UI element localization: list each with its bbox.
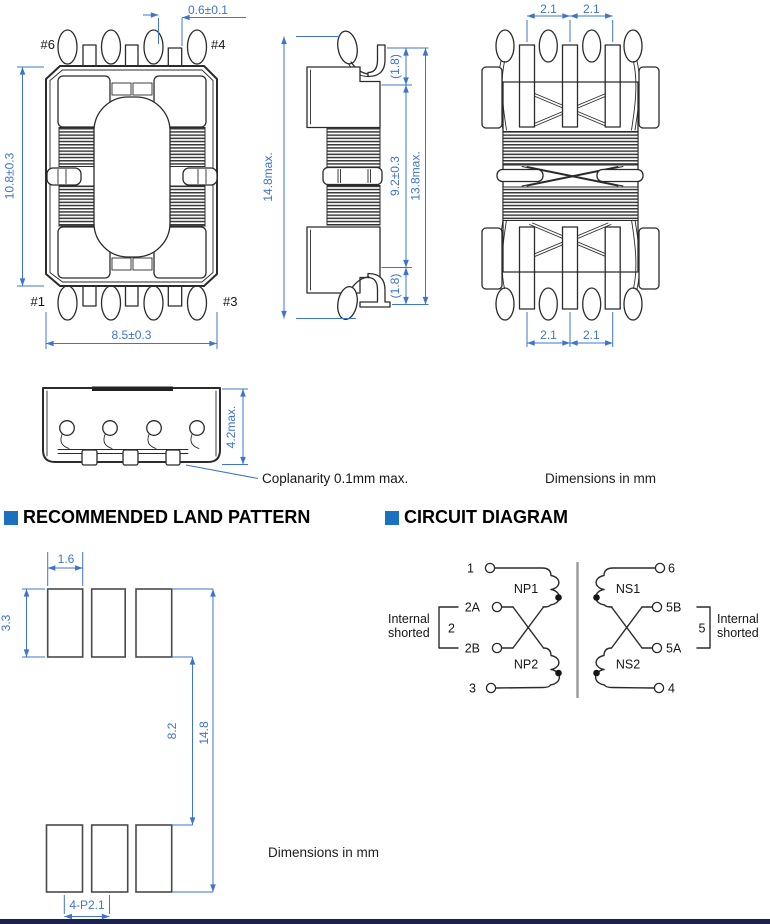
dim-front-height: 10.8±0.3 xyxy=(3,152,17,199)
terminal-5b xyxy=(652,602,661,611)
winding-label-np2: NP2 xyxy=(514,658,538,672)
front-pins-top xyxy=(58,30,207,67)
front-center-core xyxy=(94,97,170,257)
rear-dims-bottom: 2.1 2.1 xyxy=(527,312,613,347)
front-dimensioned-terminal xyxy=(168,48,181,67)
dim-pitch: 4-P2.1 xyxy=(69,898,105,912)
section-header-circuit: CIRCUIT DIAGRAM xyxy=(385,507,568,528)
side-center-tab xyxy=(323,168,382,185)
front-winding-right-lower xyxy=(170,186,205,226)
terminal-3 xyxy=(486,683,495,692)
rear-dims-top: 2.1 2.1 xyxy=(527,2,613,42)
internal-shorted-left-line1: Internal xyxy=(388,612,430,626)
rear-side-tab-right xyxy=(597,170,643,182)
dim-side-height-with-leads: 13.8max. xyxy=(409,151,423,200)
dot-ns1 xyxy=(593,594,600,601)
coplanarity-note: Coplanarity 0.1mm max. xyxy=(262,471,408,486)
rear-view-drawing: 2.1 2.1 2.1 2.1 xyxy=(470,0,670,360)
terminal-label-4: 4 xyxy=(668,682,675,696)
land-dim-pad-height: 3.3 xyxy=(0,589,45,657)
land-dim-pad-width: 1.6 xyxy=(48,552,83,586)
terminal-2a xyxy=(492,602,501,611)
dim-pad-width: 1.6 xyxy=(58,552,75,566)
dot-np2 xyxy=(555,670,562,677)
profile-body xyxy=(43,387,220,466)
dimensions-note-top: Dimensions in mm xyxy=(545,471,656,486)
internal-shorted-right-line2: shorted xyxy=(717,626,759,640)
front-side-tab-left xyxy=(47,168,81,185)
dim-pad-height: 3.3 xyxy=(0,614,13,631)
terminal-label-2a: 2A xyxy=(465,601,481,615)
profile-core-band xyxy=(92,387,173,392)
pin-label-3: #3 xyxy=(223,294,237,309)
internal-shorted-right-line1: Internal xyxy=(717,612,759,626)
rear-body xyxy=(482,30,659,320)
winding-label-ns2: NS2 xyxy=(616,658,640,672)
front-side-tab-right xyxy=(183,168,217,185)
front-dim-height: 10.8±0.3 xyxy=(3,67,45,286)
circuit-diagram-title: CIRCUIT DIAGRAM xyxy=(404,507,568,528)
coplanarity-leader-line xyxy=(186,465,258,479)
internal-shorted-left-line2: shorted xyxy=(388,626,430,640)
side-flange-bottom xyxy=(307,227,380,293)
front-pins-bottom xyxy=(58,286,207,320)
primary-crossover xyxy=(513,607,544,648)
terminal-6 xyxy=(655,563,664,572)
secondary-crossover xyxy=(612,607,643,648)
land-pattern-drawing: 1.6 3.3 8.2 14.8 4-P2.1 xyxy=(0,540,240,924)
footer-bar xyxy=(0,919,770,924)
dot-ns2 xyxy=(593,670,600,677)
front-winding-left-upper xyxy=(59,128,94,167)
profile-view-drawing: 4.2max. Coplanarity 0.1mm max. xyxy=(0,370,470,495)
terminal-label-2b: 2B xyxy=(465,642,480,656)
group-label-2: 2 xyxy=(448,622,455,636)
dim-row-gap: 8.2 xyxy=(165,722,179,739)
dim-profile-height: 4.2max. xyxy=(224,406,238,449)
dim-side-overall-height: 14.8max. xyxy=(261,152,275,201)
pin-label-4: #4 xyxy=(211,37,225,52)
terminal-label-5a: 5A xyxy=(666,642,682,656)
dimensions-note-bottom: Dimensions in mm xyxy=(268,845,379,860)
land-dim-pitch: 4-P2.1 xyxy=(64,895,109,917)
terminal-4 xyxy=(654,683,663,692)
land-pads xyxy=(47,589,172,892)
side-view-drawing: 14.8max. (1.8) 9.2±0.3 (1.8) 13.8max. xyxy=(260,0,440,330)
front-view-drawing: 0.6±0.1 #6 #4 #1 #3 10.8±0.3 8.5±0.3 xyxy=(0,0,260,360)
terminal-1 xyxy=(485,563,494,572)
dim-rear-pitch-top-right: 2.1 xyxy=(583,2,600,16)
side-lead-top xyxy=(368,45,385,77)
pin-label-1: #1 xyxy=(31,294,45,309)
side-winding-upper xyxy=(327,128,380,168)
land-dim-row-gap: 8.2 xyxy=(165,657,193,825)
front-winding-left-lower xyxy=(59,186,94,226)
dim-side-lead-bottom: (1.8) xyxy=(388,274,402,299)
land-pattern-title: RECOMMENDED LAND PATTERN xyxy=(23,507,310,528)
section-square-icon xyxy=(4,511,18,525)
side-pin-top xyxy=(335,30,359,66)
side-winding-lower xyxy=(327,186,380,226)
dot-np1 xyxy=(555,594,562,601)
datasheet-page: 0.6±0.1 #6 #4 #1 #3 10.8±0.3 8.5±0.3 xyxy=(0,0,770,924)
terminal-label-1: 1 xyxy=(467,562,474,576)
rear-winding-lower xyxy=(503,187,638,221)
dim-rear-pitch-top-left: 2.1 xyxy=(540,2,557,16)
terminal-2b xyxy=(492,643,501,652)
terminal-label-5b: 5B xyxy=(666,601,681,615)
winding-label-ns1: NS1 xyxy=(616,582,640,596)
circuit-diagram-drawing: 1 2A 2B 3 6 5B 5A 4 NP1 NP2 NS1 NS2 2 5 … xyxy=(380,545,770,705)
terminal-5a xyxy=(652,643,661,652)
terminal-label-6: 6 xyxy=(668,562,675,576)
side-dims-right: (1.8) 9.2±0.3 (1.8) 13.8max. xyxy=(382,48,429,305)
dim-side-body-height: 9.2±0.3 xyxy=(388,156,402,196)
dim-front-terminal-width: 0.6±0.1 xyxy=(188,3,228,17)
profile-dim-height: 4.2max. xyxy=(222,389,248,465)
rear-winding-upper xyxy=(503,132,638,166)
group-label-5: 5 xyxy=(699,622,706,636)
section-square-icon xyxy=(385,511,399,525)
section-header-land-pattern: RECOMMENDED LAND PATTERN xyxy=(4,507,310,528)
winding-label-np1: NP1 xyxy=(514,582,538,596)
pin-label-6: #6 xyxy=(41,37,55,52)
front-winding-right-upper xyxy=(170,128,205,167)
dim-front-width: 8.5±0.3 xyxy=(112,328,152,342)
side-lead-bottom xyxy=(360,274,390,308)
side-body xyxy=(307,30,390,321)
dim-side-lead-top: (1.8) xyxy=(388,54,402,79)
rear-side-tab-left xyxy=(497,170,543,182)
dim-overall: 14.8 xyxy=(197,721,211,745)
dim-rear-pitch-bottom-left: 2.1 xyxy=(540,328,557,342)
circuit-labels: 1 2A 2B 3 6 5B 5A 4 NP1 NP2 NS1 NS2 2 5 … xyxy=(388,562,759,696)
dim-rear-pitch-bottom-right: 2.1 xyxy=(583,328,600,342)
terminal-label-3: 3 xyxy=(469,682,476,696)
front-body xyxy=(46,66,217,286)
